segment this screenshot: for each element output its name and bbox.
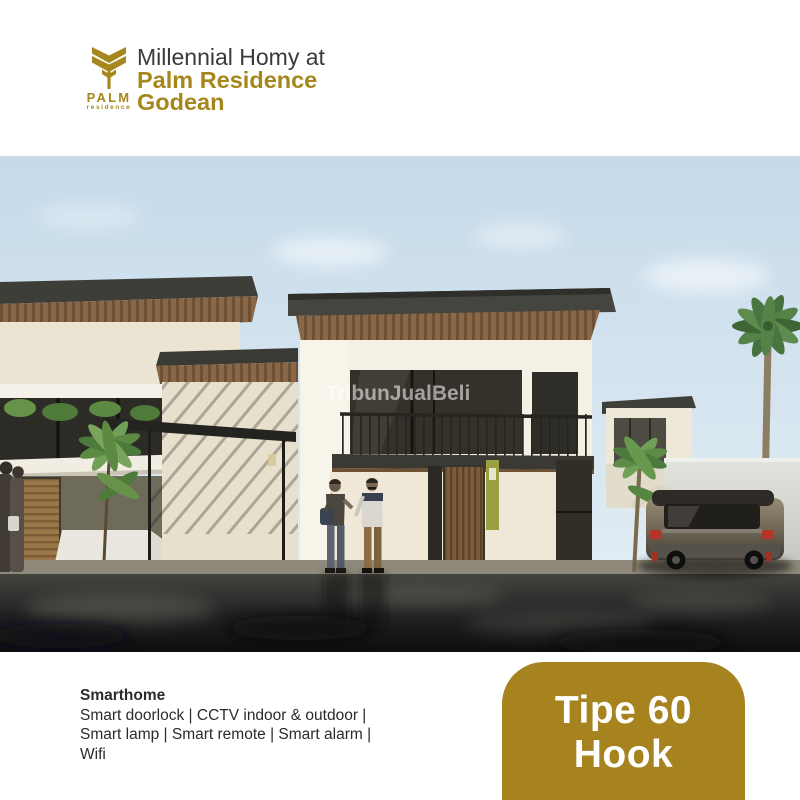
minivan xyxy=(637,490,793,577)
page-title: Millennial Homy at Palm Residence Godean xyxy=(137,46,325,114)
title-line-2: Palm Residence xyxy=(137,69,325,92)
smarthome-features: Smarthome Smart doorlock | CCTV indoor &… xyxy=(80,686,480,764)
header: PALM residence Millennial Homy at Palm R… xyxy=(0,0,800,156)
title-line-1: Millennial Homy at xyxy=(137,46,325,69)
people-left-edge xyxy=(0,462,24,573)
title-line-3: Godean xyxy=(137,91,325,114)
features-line-1: Smart doorlock | CCTV indoor & outdoor | xyxy=(80,706,480,726)
type-badge: Tipe 60 Hook xyxy=(502,662,745,800)
brand-name: PALM xyxy=(84,90,134,105)
features-title: Smarthome xyxy=(80,686,480,706)
palm-tree-icon xyxy=(90,47,128,89)
house-render-scene: TribunJualBeli xyxy=(0,156,800,652)
watermark: TribunJualBeli xyxy=(326,382,471,405)
brand-subname: residence xyxy=(84,104,134,111)
features-line-2: Smart lamp | Smart remote | Smart alarm … xyxy=(80,725,480,745)
features-line-3: Wifi xyxy=(80,745,480,765)
balcony-railing xyxy=(340,414,592,458)
front-door xyxy=(444,466,484,566)
badge-line-2: Hook xyxy=(502,733,745,777)
house-photo: TribunJualBeli xyxy=(0,156,800,652)
badge-line-1: Tipe 60 xyxy=(502,689,745,733)
flyer: PALM residence Millennial Homy at Palm R… xyxy=(0,0,800,800)
brand-logo: PALM residence xyxy=(84,47,134,111)
